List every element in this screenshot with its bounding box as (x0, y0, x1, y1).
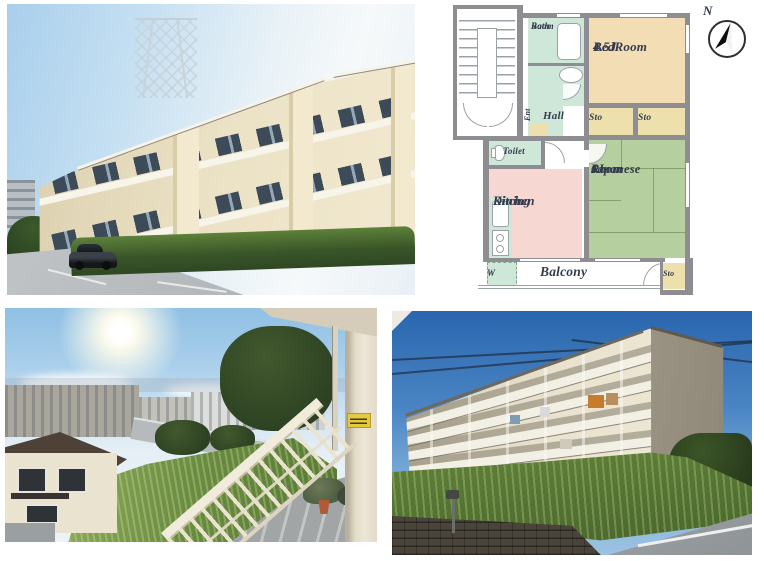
building-front-photo[interactable] (7, 4, 415, 295)
window (620, 13, 667, 18)
door-arc (463, 103, 487, 127)
wall (483, 258, 520, 262)
wall (660, 290, 693, 295)
sliding-door (595, 258, 640, 262)
stove-burner (496, 234, 504, 242)
stove-burner (496, 245, 504, 253)
tatami-line (589, 200, 621, 201)
listing-collage: BathRoom BedRoom4.5J Ent Hall Sto Sto To… (0, 0, 764, 561)
wall (528, 63, 584, 66)
apartment-block (5, 385, 139, 437)
laundry-beige (560, 439, 572, 449)
wall (453, 5, 457, 140)
compass-needle (714, 21, 741, 55)
wall (483, 136, 489, 262)
wall (489, 165, 545, 169)
trees (155, 420, 210, 455)
sliding-door (520, 258, 580, 262)
door-arc (489, 103, 513, 127)
compass: N (703, 4, 749, 64)
laundry-blue (510, 415, 520, 424)
wall (483, 136, 585, 141)
wall (541, 141, 545, 165)
wall (584, 140, 589, 150)
entrance-label: Ent (524, 95, 536, 121)
sign-pole (452, 497, 455, 533)
wall (523, 13, 557, 18)
toilet-tank (491, 148, 496, 158)
window (685, 163, 690, 207)
balcony-railing (478, 285, 660, 289)
wall (685, 13, 690, 25)
building-rear-photo[interactable] (392, 311, 752, 555)
antenna-tower (135, 18, 197, 98)
wall (685, 207, 690, 262)
sticker-text-lines (350, 416, 367, 424)
stair-landing (477, 28, 497, 98)
wall (589, 135, 685, 140)
floor-plan[interactable]: BathRoom BedRoom4.5J Ent Hall Sto Sto To… (445, 0, 764, 300)
japanese-room-area (589, 140, 685, 258)
house-window (17, 467, 47, 493)
window (685, 25, 690, 53)
washbasin (559, 67, 583, 83)
laundry-white (540, 407, 550, 417)
laundry-orange (588, 395, 604, 408)
door-arc (545, 142, 565, 163)
wall (685, 53, 690, 163)
wall (453, 5, 523, 9)
window (557, 13, 580, 18)
house-window (57, 467, 87, 493)
balcony-view-photo[interactable] (5, 308, 377, 542)
house-window (25, 504, 59, 524)
entrance-step (529, 123, 547, 137)
car-wheel (102, 261, 111, 270)
wall (584, 167, 589, 262)
parked-car (69, 244, 117, 270)
street (5, 523, 55, 542)
house (5, 453, 117, 533)
warning-sticker (347, 413, 371, 428)
tatami-line (589, 232, 685, 233)
car-wheel (75, 261, 84, 270)
antenna-bar (135, 18, 197, 20)
bathtub (557, 23, 581, 60)
bedroom-area (589, 18, 685, 103)
compass-circle (708, 20, 746, 58)
tatami-line (653, 168, 654, 232)
house-awning (11, 493, 69, 499)
laundry-tan (606, 393, 618, 405)
wall (580, 258, 595, 262)
street-sign (446, 490, 459, 499)
